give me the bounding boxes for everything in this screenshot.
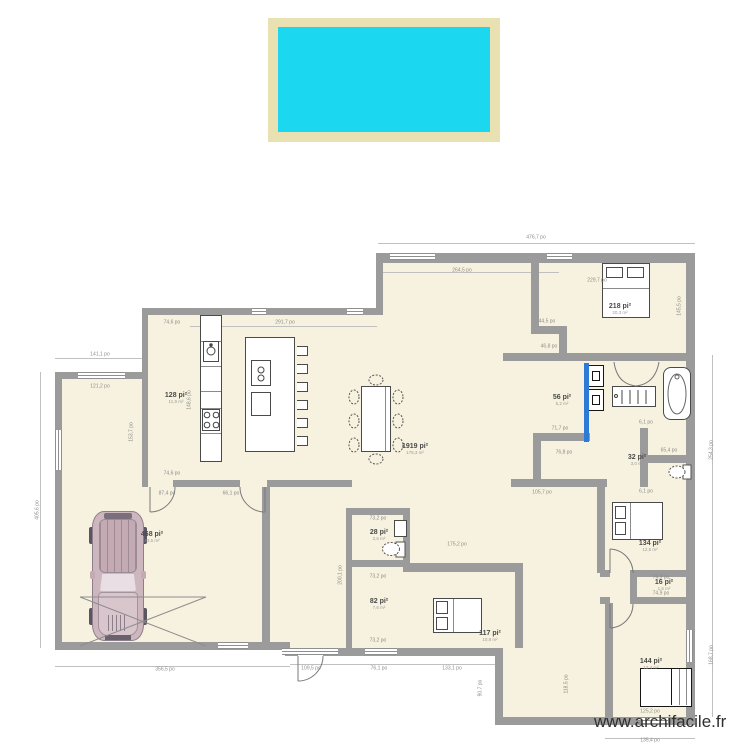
room-area-metric: 7,6 m² <box>370 605 388 610</box>
dimension-label: 291,7 po <box>275 321 294 326</box>
dimension-label: 405,6 po <box>36 500 41 519</box>
dimension-label: 76,8 po <box>556 451 573 456</box>
room-area-metric: 3,0 m² <box>628 461 646 466</box>
room-area: 468 pi² <box>141 531 163 538</box>
room-label-storage: 82 pi²7,6 m² <box>370 598 388 610</box>
dimension-label: 87,4 po <box>159 492 176 497</box>
dimension-label: 71,7 po <box>552 427 569 432</box>
room-area: 128 pi² <box>165 392 187 399</box>
dimension-label: 76,1 po <box>371 667 388 672</box>
room-area-metric: 5,2 m² <box>553 401 571 406</box>
dimension-label: 118,5 po <box>565 674 570 693</box>
dimension-label: 175,2 po <box>447 543 466 548</box>
dimension-label: 135,4 po <box>640 739 659 744</box>
dimension-label: 44,5 po <box>539 320 556 325</box>
dimension-label: 109,5 po <box>301 667 320 672</box>
dimension-label: 65,4 po <box>661 449 678 454</box>
dimension-label: 74,6 po <box>164 321 181 326</box>
dimension-label: 121,2 po <box>90 385 109 390</box>
dimension-label: 90,7 po <box>479 680 484 697</box>
room-area: 82 pi² <box>370 598 388 605</box>
room-area: 32 pi² <box>628 454 646 461</box>
room-label-wc-2: 32 pi²3,0 m² <box>628 454 646 466</box>
room-area: 56 pi² <box>553 394 571 401</box>
dimension-label: 264,5 po <box>452 269 471 274</box>
dimension-label: 74,6 po <box>164 472 181 477</box>
dimension-label: 133,1 po <box>442 667 461 672</box>
room-area-metric: 10,9 m² <box>479 637 501 642</box>
room-label-kitchen: 128 pi²11,9 m² <box>165 392 187 404</box>
dimension-label: 6,1 po <box>639 421 653 426</box>
dimension-label: 476,7 po <box>526 236 545 241</box>
dimension-label: 145,5 po <box>678 296 683 315</box>
room-area: 1919 pi² <box>402 443 428 450</box>
room-area: 218 pi² <box>609 303 631 310</box>
room-area: 134 pi² <box>639 540 661 547</box>
dimension-label: 74,9 po <box>653 592 670 597</box>
watermark: www.archifacile.fr <box>594 712 726 732</box>
room-area: 117 pi² <box>479 630 501 637</box>
dimension-label: 148,6 po <box>188 390 193 409</box>
room-area-metric: 13,4 m² <box>640 665 662 670</box>
dimension-label: 141,1 po <box>90 353 109 358</box>
room-area-metric: 1,5 m² <box>655 586 673 591</box>
dimension-label: 73,2 po <box>370 575 387 580</box>
floorplan-canvas: 218 pi²20,3 m²128 pi²11,9 m²1919 pi²178,… <box>0 0 750 750</box>
dimension-label: 168,7 po <box>710 645 715 664</box>
room-area-metric: 178,3 m² <box>402 450 428 455</box>
dimension-label: 356,5 po <box>155 668 174 673</box>
room-label-bedroom-top-right: 218 pi²20,3 m² <box>609 303 631 315</box>
room-area-metric: 11,9 m² <box>165 399 187 404</box>
dimension-label: 6,1 po <box>639 490 653 495</box>
room-label-bedroom-south-east: 144 pi²13,4 m² <box>640 658 662 670</box>
room-area: 144 pi² <box>640 658 662 665</box>
room-label-living: 1919 pi²178,3 m² <box>402 443 428 455</box>
annotation-layer: 218 pi²20,3 m²128 pi²11,9 m²1919 pi²178,… <box>0 0 750 750</box>
room-label-garage: 468 pi²43,5 m² <box>141 531 163 543</box>
room-area: 28 pi² <box>370 529 388 536</box>
dimension-label: 66,1 po <box>223 492 240 497</box>
dimension-label: 254,3 po <box>710 440 715 459</box>
dimension-label: 73,2 po <box>370 639 387 644</box>
room-area-metric: 2,6 m² <box>370 536 388 541</box>
room-area: 16 pi² <box>655 579 673 586</box>
room-area-metric: 43,5 m² <box>141 538 163 543</box>
room-area-metric: 12,5 m² <box>639 547 661 552</box>
room-label-bedroom-south: 117 pi²10,9 m² <box>479 630 501 642</box>
room-label-bedroom-mid-right: 134 pi²12,5 m² <box>639 540 661 552</box>
room-label-wc: 28 pi²2,6 m² <box>370 529 388 541</box>
room-area-metric: 20,3 m² <box>609 310 631 315</box>
dimension-label: 229,7 po <box>587 279 606 284</box>
room-label-closet: 16 pi²1,5 m² <box>655 579 673 591</box>
dimension-label: 105,7 po <box>532 491 551 496</box>
dimension-label: 46,8 po <box>541 345 558 350</box>
dimension-label: 200,1 po <box>339 565 344 584</box>
dimension-label: 73,2 po <box>370 517 387 522</box>
dimension-label: 153,7 po <box>130 422 135 441</box>
room-label-bathroom: 56 pi²5,2 m² <box>553 394 571 406</box>
